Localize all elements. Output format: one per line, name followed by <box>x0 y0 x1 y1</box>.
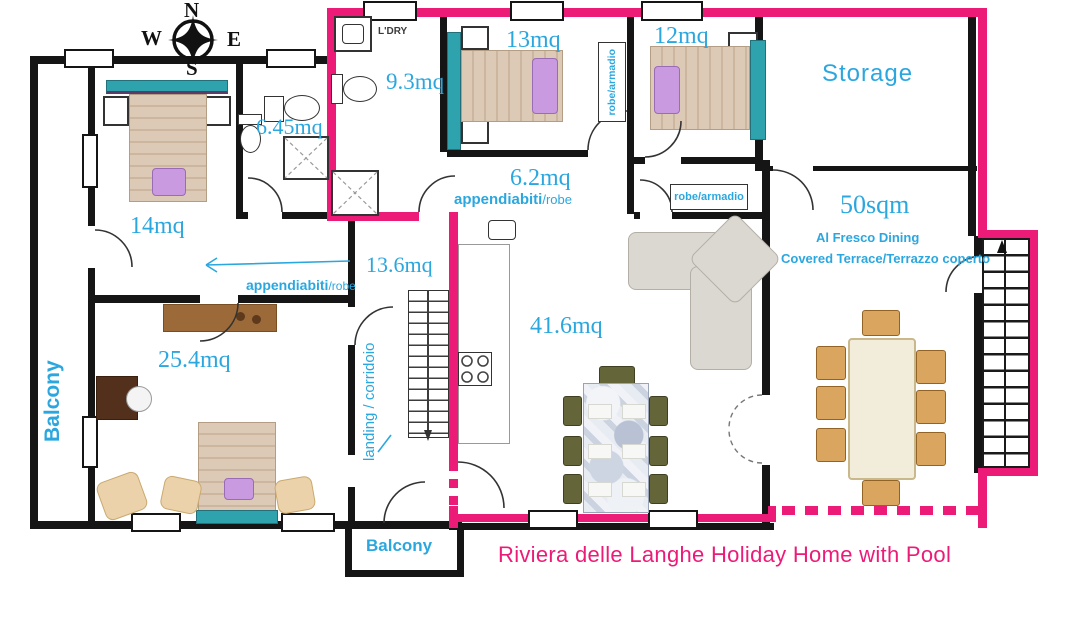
wall-balcony-bottom <box>457 529 464 577</box>
window <box>641 1 703 21</box>
window <box>64 49 114 68</box>
pink-wall <box>978 230 1038 238</box>
bed-pillow <box>152 168 186 196</box>
nightstand <box>461 120 489 144</box>
kitchen-counter <box>458 244 510 444</box>
window <box>82 134 98 188</box>
room-label-living-416: 41.6mq <box>530 314 603 338</box>
kitchen-sink <box>488 220 516 240</box>
label-appendiabiti-hall-bold: appendiabiti <box>454 191 542 208</box>
wall <box>348 215 355 307</box>
compass-s: S <box>186 58 198 79</box>
label-robe-armadio-mid: robe/armadio <box>674 192 744 203</box>
double-door-arc <box>729 395 762 463</box>
wall-balcony-bottom <box>345 570 464 577</box>
wall <box>449 523 774 530</box>
wall <box>672 212 768 219</box>
wall-balcony-bottom <box>345 529 352 576</box>
dining-chair <box>649 436 668 466</box>
outdoor-table <box>848 338 916 480</box>
nightstand <box>103 96 129 126</box>
dining-chair <box>649 396 668 426</box>
pink-wall <box>768 506 776 522</box>
bed-headboard <box>106 80 228 94</box>
nightstand <box>461 26 489 50</box>
pink-wall <box>984 468 1038 476</box>
compass-w: W <box>141 28 162 49</box>
sideboard-knob <box>236 312 245 321</box>
wall <box>95 295 200 303</box>
outdoor-chair <box>916 432 946 466</box>
wall <box>627 8 634 214</box>
room-label-bath-645: 6.45mq <box>256 116 323 138</box>
label-appendiabiti-hall-suffix: /robe <box>542 192 572 207</box>
hob <box>458 352 492 386</box>
outdoor-chair <box>816 346 846 380</box>
door-opening <box>86 226 97 268</box>
wall <box>236 212 248 219</box>
stairs-exterior <box>982 238 1030 468</box>
wall <box>30 56 38 529</box>
room-label-bed-12: 12mq <box>654 24 709 48</box>
stairs-rail <box>427 290 429 438</box>
outdoor-chair <box>916 350 946 384</box>
wall <box>762 160 770 395</box>
page-title: Riviera delle Langhe Holiday Home with P… <box>498 542 951 568</box>
pink-wall-dashed-door <box>449 462 458 508</box>
desk-chair <box>126 386 152 412</box>
window <box>281 513 335 532</box>
wall <box>634 212 640 219</box>
armchair <box>273 475 316 515</box>
wall <box>348 345 355 455</box>
stairs-rail <box>1004 238 1006 468</box>
toilet-tank <box>331 74 343 104</box>
robe-armadio-box: robe/armadio <box>670 184 748 210</box>
shower <box>283 136 329 180</box>
room-label-bed-14: 14mq <box>130 214 185 238</box>
label-appendiabiti-suite-bold: appendiabiti <box>246 277 328 293</box>
pink-wall <box>978 8 987 238</box>
nightstand <box>205 96 231 126</box>
dining-chair <box>563 436 582 466</box>
toilet-bowl <box>343 76 377 102</box>
label-appendiabiti-suite: appendiabiti/robe <box>246 278 356 292</box>
label-balcony-bottom: Balcony <box>366 537 432 554</box>
wall <box>282 212 330 219</box>
bed-headboard <box>196 510 278 524</box>
label-al-fresco: Al Fresco Dining <box>816 231 919 244</box>
outdoor-chair <box>862 310 900 336</box>
room-label-storage: Storage <box>822 62 913 86</box>
window <box>648 510 698 529</box>
label-appendiabiti-hall: appendiabiti/robe <box>454 192 572 207</box>
bed-pillow <box>224 478 254 500</box>
bed <box>198 422 276 518</box>
label-balcony-left: Balcony <box>42 322 63 442</box>
window <box>510 1 564 21</box>
window <box>266 49 316 68</box>
window <box>131 513 181 532</box>
label-laundry: L'DRY <box>378 27 407 37</box>
dining-chair <box>563 474 582 504</box>
sideboard-knob <box>252 315 261 324</box>
robe-armadio-box: robe/armadio <box>598 42 626 122</box>
wall <box>238 295 350 303</box>
compass-e: E <box>227 29 241 50</box>
bed-pillow <box>654 66 680 114</box>
outdoor-chair <box>816 386 846 420</box>
room-label-suite-254: 25.4mq <box>158 348 231 372</box>
compass-n: N <box>184 0 199 21</box>
pink-wall <box>1030 230 1038 476</box>
outdoor-chair <box>816 428 846 462</box>
bed-headboard <box>750 40 766 140</box>
outdoor-chair <box>916 390 946 424</box>
label-robe-armadio-top: robe/armadio <box>607 49 618 116</box>
room-label-bed-13: 13mq <box>506 28 561 52</box>
armchair <box>159 474 203 515</box>
room-label-bath-93: 9.3mq <box>386 70 444 93</box>
wall <box>348 487 355 527</box>
wall <box>968 8 976 236</box>
room-label-landing-136: 13.6mq <box>366 254 433 276</box>
wall <box>813 166 977 171</box>
pink-wall <box>449 212 458 462</box>
floor-plan: N W E S L'DRY 9.3mq 13mq 12mq Storage ro… <box>0 0 1080 630</box>
pink-dashed-terrace-edge <box>782 506 978 515</box>
room-label-terrace-size: 50sqm <box>840 192 909 218</box>
window <box>528 510 578 529</box>
pink-wall <box>978 468 987 528</box>
wall <box>681 157 760 164</box>
bed-headboard <box>447 32 461 150</box>
pink-wall <box>449 514 776 522</box>
dining-table <box>583 383 649 513</box>
washing-machine-door <box>342 24 364 44</box>
bed-pillow <box>532 58 558 114</box>
wall <box>974 293 982 473</box>
outdoor-chair <box>862 480 900 506</box>
label-landing-corridoio: landing / corridoio <box>362 296 377 461</box>
wall <box>634 157 645 164</box>
shower <box>331 170 379 216</box>
room-label-hall-62: 6.2mq <box>510 166 571 190</box>
label-covered-terrace: Covered Terrace/Terrazzo coperto <box>781 252 990 265</box>
dining-chair <box>563 396 582 426</box>
window <box>82 416 98 468</box>
wall <box>447 150 588 157</box>
dining-chair <box>649 474 668 504</box>
label-appendiabiti-suite-suffix: /robe <box>328 279 355 293</box>
